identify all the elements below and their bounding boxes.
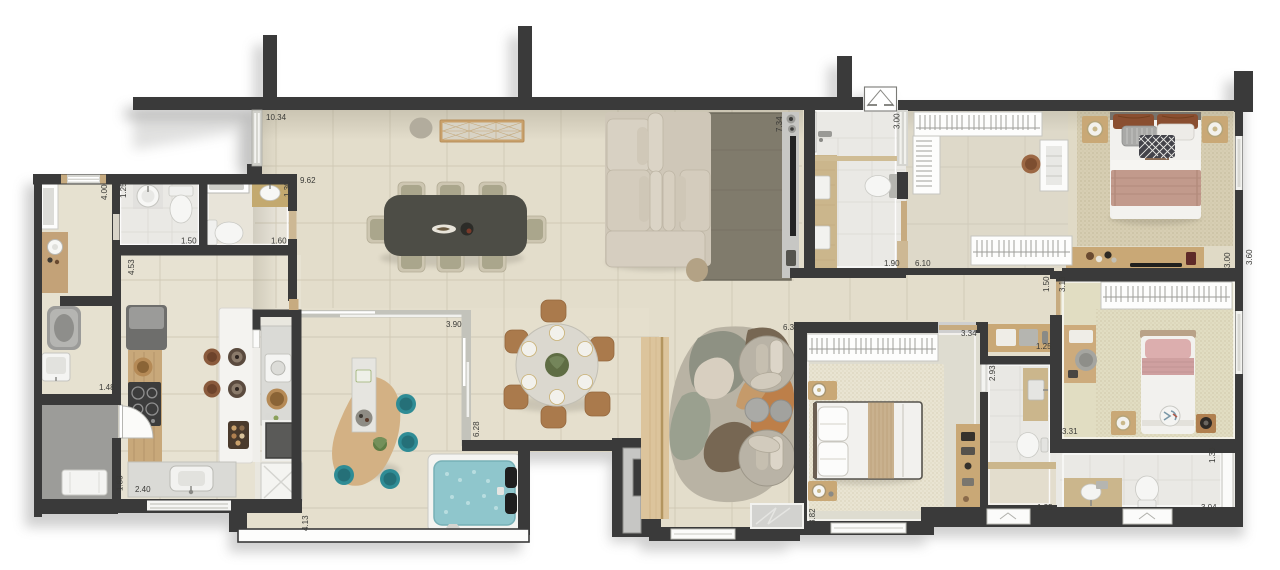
svg-text:3.60: 3.60 (1245, 249, 1254, 265)
svg-text:4.00: 4.00 (100, 184, 109, 200)
svg-text:6.10: 6.10 (915, 259, 931, 268)
svg-text:3.00: 3.00 (1223, 252, 1232, 268)
svg-text:3.34: 3.34 (961, 329, 977, 338)
svg-text:3.00: 3.00 (893, 113, 902, 129)
svg-text:2.40: 2.40 (135, 485, 151, 494)
svg-text:1.83: 1.83 (116, 475, 125, 491)
svg-text:1.30: 1.30 (1208, 447, 1217, 463)
svg-text:1.25: 1.25 (1036, 342, 1052, 351)
svg-text:4.13: 4.13 (301, 515, 310, 531)
svg-text:9.62: 9.62 (300, 176, 316, 185)
svg-text:1.50: 1.50 (181, 237, 197, 246)
svg-text:3.31: 3.31 (1062, 427, 1078, 436)
svg-text:3.90: 3.90 (446, 320, 462, 329)
svg-text:3.13: 3.13 (1058, 276, 1067, 292)
svg-text:1.60: 1.60 (271, 237, 287, 246)
svg-text:1.30: 1.30 (283, 181, 292, 197)
svg-text:1.50: 1.50 (1042, 276, 1051, 292)
svg-text:6.30: 6.30 (783, 323, 799, 332)
svg-text:2.93: 2.93 (988, 365, 997, 381)
svg-text:1.25: 1.25 (119, 182, 128, 198)
svg-text:1.25: 1.25 (1037, 503, 1053, 512)
svg-text:7.34: 7.34 (775, 116, 784, 132)
svg-text:3.82: 3.82 (808, 508, 817, 524)
svg-text:6.28: 6.28 (472, 421, 481, 437)
svg-text:10.34: 10.34 (266, 113, 287, 122)
svg-text:1.48: 1.48 (99, 383, 115, 392)
svg-text:1.90: 1.90 (884, 259, 900, 268)
svg-text:4.53: 4.53 (127, 259, 136, 275)
svg-text:3.04: 3.04 (1201, 503, 1217, 512)
